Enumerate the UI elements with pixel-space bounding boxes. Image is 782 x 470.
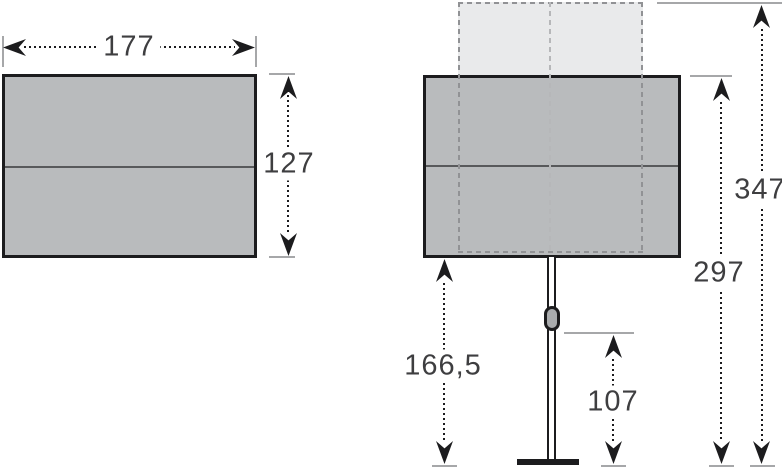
arrow-up-icon <box>436 259 453 282</box>
pole-handle <box>544 306 560 331</box>
width-dim-right-tick <box>255 36 257 67</box>
ghost-right-edge <box>641 2 643 253</box>
max-height-dim-ground-tick <box>750 465 775 467</box>
arrow-down-icon <box>605 441 622 464</box>
max-height-dim-line <box>761 29 763 441</box>
ghost-left-edge <box>458 2 460 253</box>
parasol-pole <box>547 257 556 461</box>
handle-dim-top-tick <box>564 332 634 334</box>
dim-label-handle-height: 107 <box>581 386 644 419</box>
arrow-down-icon <box>713 441 730 464</box>
arrow-up-icon <box>605 335 622 358</box>
open-height-dim-ground-tick <box>709 465 734 467</box>
arrow-up-icon <box>753 5 770 28</box>
clearance-dim-ground-tick <box>432 465 457 467</box>
canopy-top-view <box>2 74 257 258</box>
dim-label-height: 127 <box>257 148 320 181</box>
parasol-base <box>517 459 579 465</box>
height-dim-bottom-tick <box>269 256 295 258</box>
parasol-dimension-diagram: 177 127 166,5 107 297 347 <box>0 0 782 470</box>
dim-label-width: 177 <box>97 31 160 64</box>
dim-label-max-height: 347 <box>728 174 782 207</box>
height-dim-top-tick <box>269 73 295 75</box>
arrow-down-icon <box>280 233 297 256</box>
canopy-seam-line <box>5 166 254 168</box>
arrow-right-icon <box>232 39 255 56</box>
arrow-left-icon <box>3 39 26 56</box>
width-dim-left-tick <box>2 36 4 67</box>
open-height-dim-top-tick <box>690 75 732 77</box>
dim-label-clearance: 166,5 <box>398 350 488 383</box>
ghost-center-line <box>549 2 551 253</box>
dim-label-open-height: 297 <box>687 257 750 290</box>
arrow-up-icon <box>713 78 730 101</box>
handle-dim-ground-tick <box>601 465 626 467</box>
arrow-down-icon <box>753 441 770 464</box>
arrow-down-icon <box>436 441 453 464</box>
max-height-dim-top-tick <box>657 2 782 4</box>
